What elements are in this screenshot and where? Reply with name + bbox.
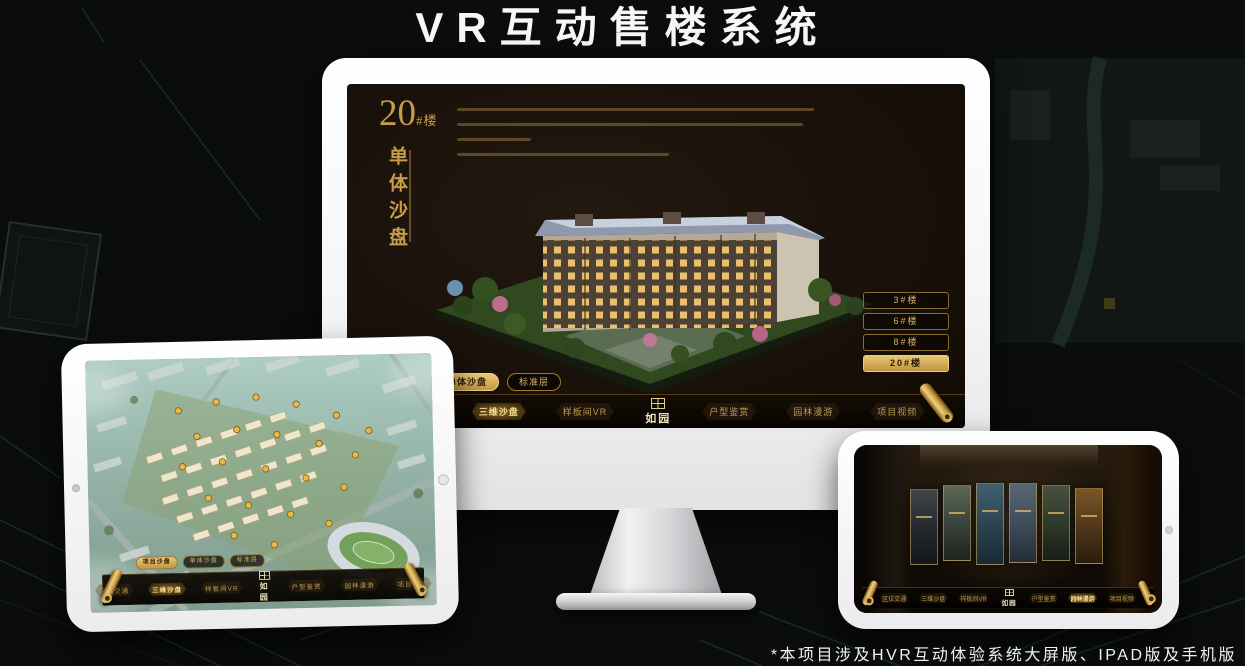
panel-caption (1081, 515, 1097, 517)
brand-logo: 如园 (1002, 589, 1017, 607)
gallery-panel[interactable] (910, 489, 938, 565)
gallery-panel[interactable] (943, 485, 971, 561)
floor-button-20[interactable]: 20#楼 (863, 355, 949, 372)
brand-logo: 如园 (259, 571, 271, 603)
panel-caption (1015, 510, 1031, 512)
nav-item-garden-roam[interactable]: 园林漫游 (783, 402, 843, 421)
headline-rule (409, 150, 411, 242)
headline-unit-text: #楼 (416, 113, 438, 128)
brand-logo-text: 如园 (645, 410, 671, 426)
subtab-standard-floor[interactable]: 标准层 (507, 373, 561, 391)
description-line (457, 108, 814, 111)
nav-item-3d-sandtable[interactable]: 三维沙盘 (146, 582, 188, 597)
tablet-frame: 项目沙盘 单体沙盘 标准层 区位交通 三维沙盘 样板间VR 如园 户型鉴赏 园林… (61, 336, 459, 633)
building-3d-render (425, 140, 887, 392)
nav-item-unit-gallery[interactable]: 户型鉴赏 (699, 402, 759, 421)
page-title: VR互动售楼系统 (0, 0, 1245, 56)
nav-item-3d-sandtable[interactable]: 三维沙盘 (917, 593, 949, 604)
seal-icon (651, 398, 665, 409)
nav-item-3d-sandtable[interactable]: 三维沙盘 (469, 402, 529, 421)
panel-caption (916, 516, 932, 518)
footnote-text: *本项目涉及HVR互动体验系统大屏版、IPAD版及手机版 (771, 641, 1237, 665)
nav-item-garden-roam[interactable]: 园林漫游 (1067, 593, 1099, 604)
brand-logo: 如园 (645, 398, 671, 426)
description-line (457, 123, 803, 126)
nav-item-showroom-vr[interactable]: 样板间VR (553, 402, 618, 421)
home-button[interactable] (438, 474, 449, 485)
nav-item-location[interactable]: 区位交通 (878, 593, 910, 604)
brand-logo-text: 如园 (259, 581, 270, 603)
brand-logo-text: 如园 (1002, 597, 1017, 607)
tablet-device: 项目沙盘 单体沙盘 标准层 区位交通 三维沙盘 样板间VR 如园 户型鉴赏 园林… (61, 336, 459, 633)
nav-item-project-video[interactable]: 项目视频 (867, 402, 927, 421)
subtab-standard-floor[interactable]: 标准层 (230, 554, 265, 568)
floor-button-6[interactable]: 6#楼 (863, 313, 949, 330)
subtab-single-sandtable[interactable]: 单体沙盘 (183, 555, 225, 569)
phone-device: 区位交通 三维沙盘 样板间VR 如园 户型鉴赏 园林漫游 项目视频 (838, 431, 1179, 629)
panel-caption (949, 512, 965, 514)
gallery-panel[interactable] (1075, 488, 1103, 564)
nav-item-unit-gallery[interactable]: 户型鉴赏 (285, 578, 327, 593)
ceiling-beam (920, 445, 1098, 469)
seal-icon (259, 571, 270, 580)
screen-headline-number: 20#楼 (379, 92, 438, 135)
floor-button-8[interactable]: 8#楼 (863, 334, 949, 351)
poster-canvas: VR互动售楼系统 20#楼 单体沙盘 (0, 0, 1245, 666)
gallery-panel[interactable] (976, 483, 1004, 565)
screen-headline-vertical: 单体沙盘 (383, 146, 410, 254)
panel-caption (982, 510, 998, 512)
nav-item-project-video[interactable]: 项目视频 (1106, 593, 1138, 604)
phone-screen: 区位交通 三维沙盘 样板间VR 如园 户型鉴赏 园林漫游 项目视频 (854, 445, 1162, 613)
panel-caption (1048, 512, 1064, 514)
nav-item-showroom-vr[interactable]: 样板间VR (199, 580, 245, 595)
phone-frame: 区位交通 三维沙盘 样板间VR 如园 户型鉴赏 园林漫游 项目视频 (838, 431, 1179, 629)
headline-number-text: 20 (379, 93, 416, 134)
monitor-base (556, 593, 756, 610)
tablet-screen: 项目沙盘 单体沙盘 标准层 区位交通 三维沙盘 样板间VR 如园 户型鉴赏 园林… (85, 353, 437, 613)
camera-icon (72, 484, 80, 492)
subtab-project-sandtable[interactable]: 项目沙盘 (136, 556, 178, 570)
seal-icon (1005, 589, 1014, 596)
gallery-panel[interactable] (1042, 485, 1070, 561)
floor-button-3[interactable]: 3#楼 (863, 292, 949, 309)
nav-item-garden-roam[interactable]: 园林漫游 (338, 577, 380, 592)
floor-button-group: 3#楼 6#楼 8#楼 20#楼 (863, 292, 949, 372)
camera-icon (1165, 526, 1173, 534)
gallery-panels (910, 483, 1103, 565)
gallery-panel[interactable] (1009, 483, 1037, 563)
nav-item-showroom-vr[interactable]: 样板间VR (956, 593, 990, 604)
nav-item-unit-gallery[interactable]: 户型鉴赏 (1028, 593, 1060, 604)
phone-navbar: 区位交通 三维沙盘 样板间VR 如园 户型鉴赏 园林漫游 项目视频 (862, 587, 1154, 608)
